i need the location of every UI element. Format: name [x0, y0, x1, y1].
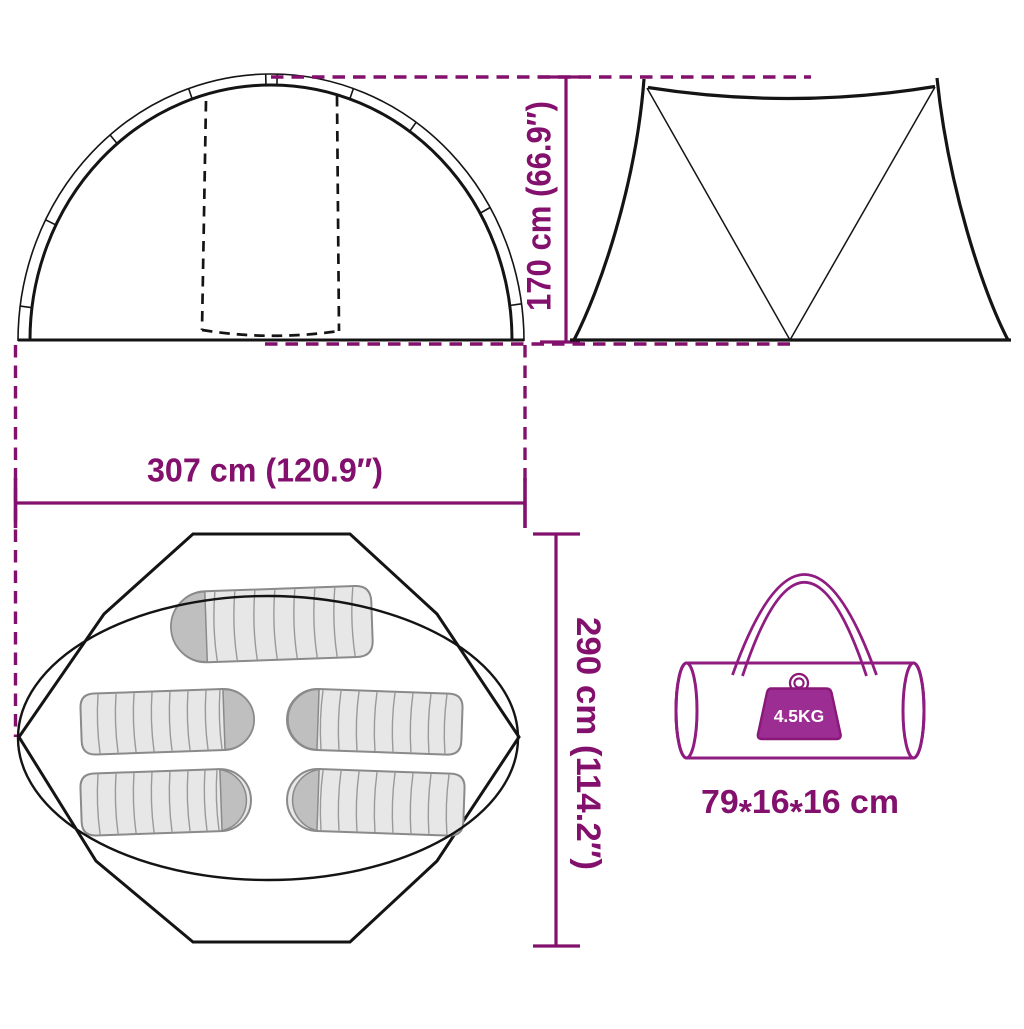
svg-text:307 cm (120.9″): 307 cm (120.9″): [147, 452, 383, 489]
svg-text:4.5KG: 4.5KG: [774, 706, 825, 726]
svg-text:290 cm (114.2″): 290 cm (114.2″): [569, 617, 607, 870]
svg-text:170 cm (66.9″): 170 cm (66.9″): [521, 101, 559, 311]
